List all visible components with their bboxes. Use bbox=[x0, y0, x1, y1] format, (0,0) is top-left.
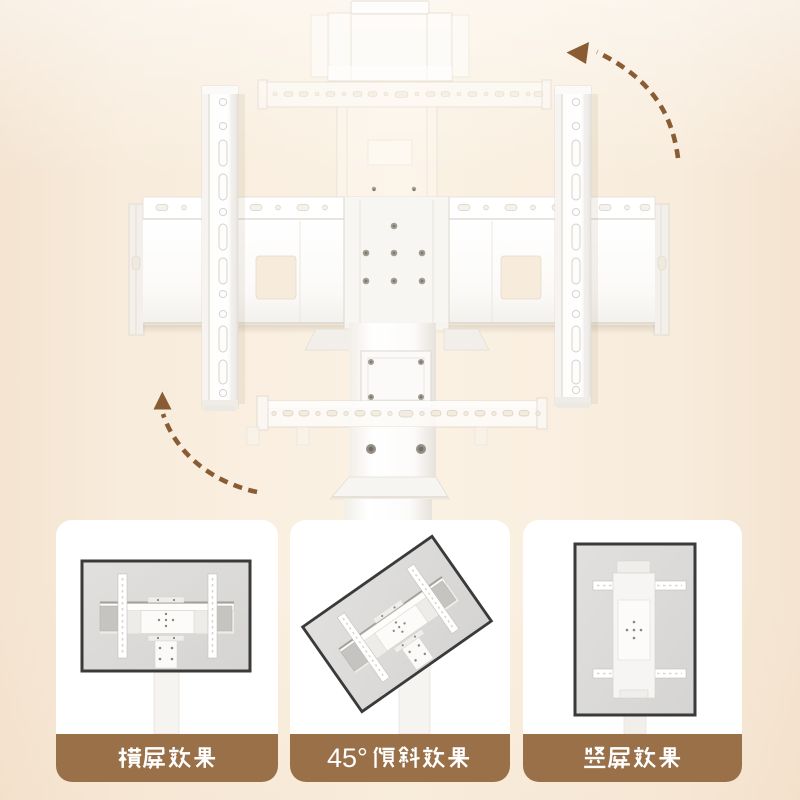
svg-text:45°: 45° bbox=[327, 743, 368, 773]
